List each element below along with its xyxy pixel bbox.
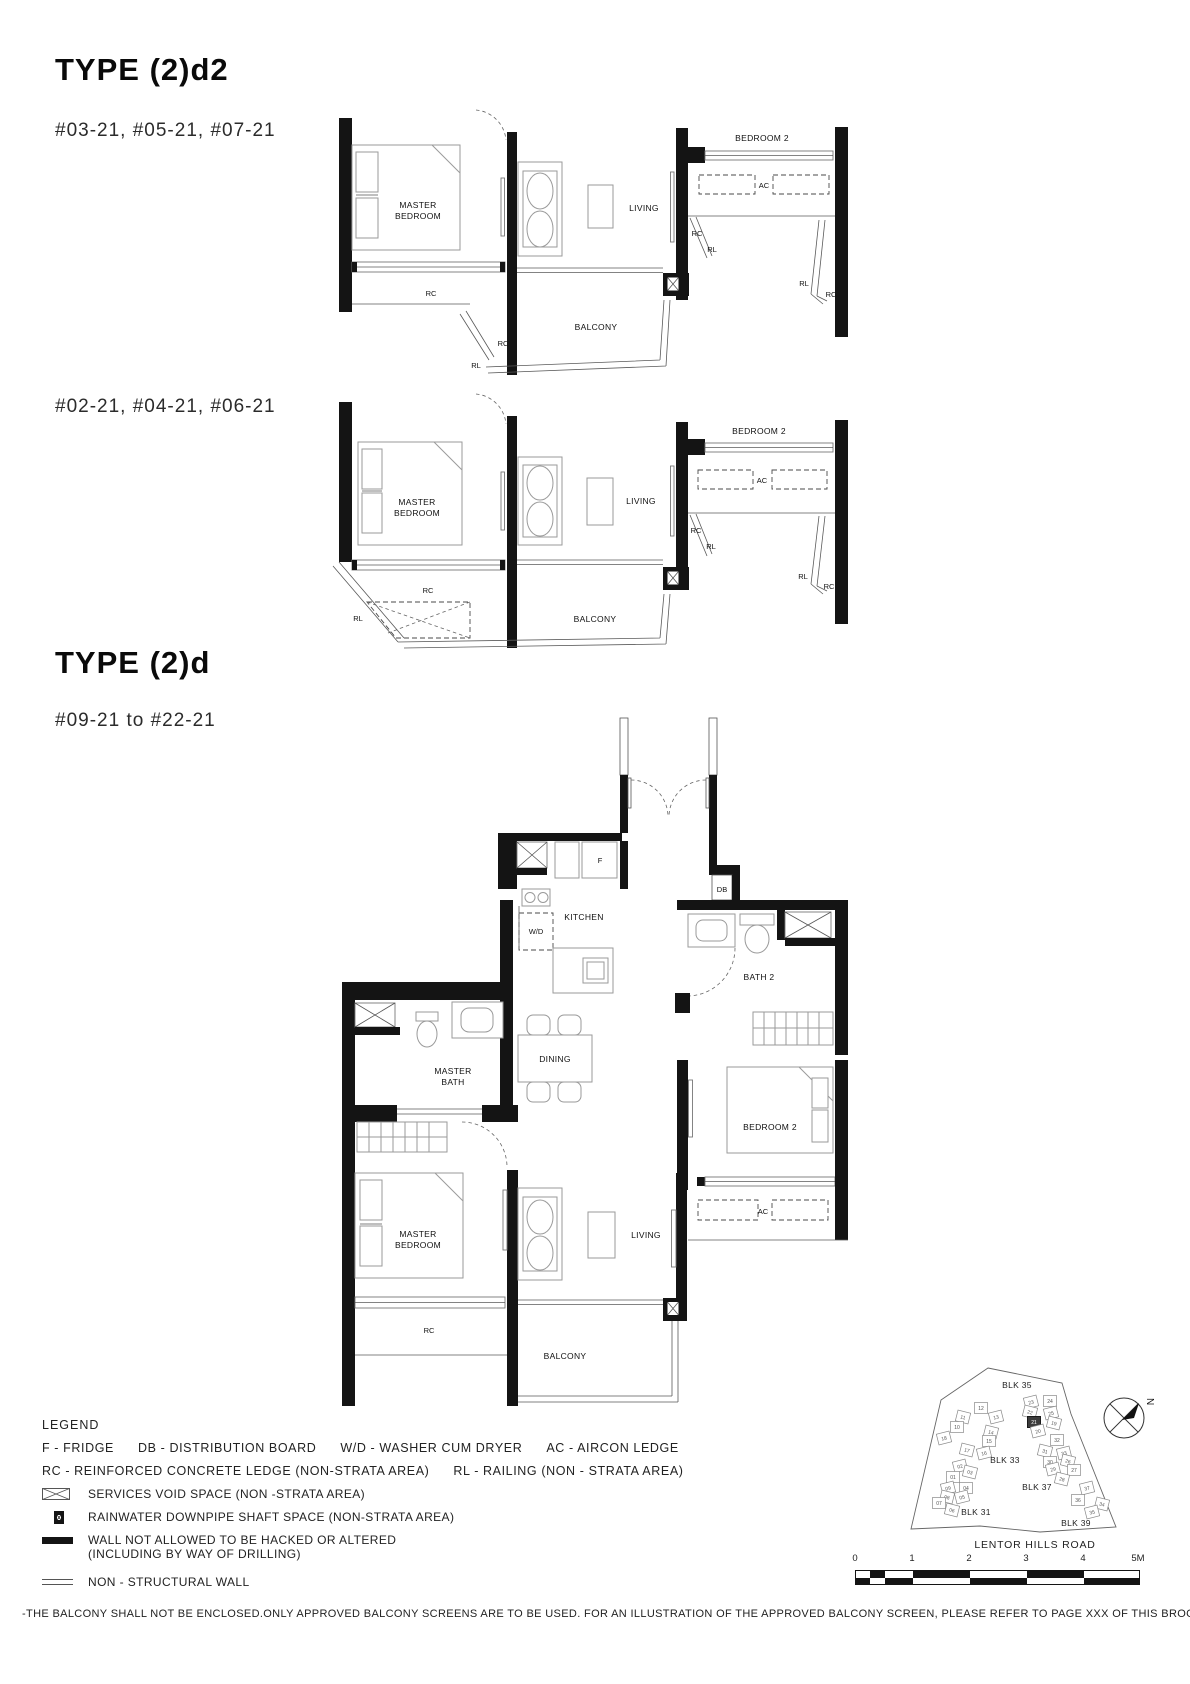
ac-label: AC <box>757 476 768 485</box>
entry-door-arc <box>476 110 506 140</box>
aircon-ledge <box>772 470 827 489</box>
site-unit-markers: 2324222521192012111310141815171632313330… <box>933 1395 1110 1519</box>
aircon-ledge <box>699 175 755 194</box>
master-bed <box>358 442 462 545</box>
window-strip <box>352 560 505 570</box>
rl-label: RL <box>799 279 809 288</box>
bedroom2-window <box>705 151 833 160</box>
rc-label: RC <box>826 290 837 299</box>
balcony-slider <box>517 560 663 565</box>
master-bath-sink <box>452 1002 503 1038</box>
north-label: N <box>1144 1398 1155 1405</box>
master-bedroom: MASTER BEDROOM <box>355 1122 518 1406</box>
site-unit-marker: 03 <box>962 1465 977 1479</box>
scale-tick: 0 <box>852 1553 857 1564</box>
legend-item-hack-wall: WALL NOT ALLOWED TO BE HACKED OR ALTERED… <box>42 1533 602 1561</box>
bath2-sink <box>688 914 735 947</box>
north-compass-icon: N <box>1104 1398 1155 1438</box>
site-unit-marker: 32 <box>1051 1435 1064 1446</box>
services-void-space <box>355 1003 400 1035</box>
site-unit-marker: 05 <box>954 1490 969 1504</box>
railing-diagonal <box>460 311 494 360</box>
sofa <box>518 1188 562 1280</box>
bedroom2: BEDROOM 2 AC <box>677 1012 848 1240</box>
rainwater-downpipe-shaft <box>663 273 689 296</box>
master-bedroom-door-arc <box>462 1122 507 1167</box>
rl-label: RL <box>471 361 481 370</box>
master-bedroom-label2: BEDROOM <box>394 508 440 518</box>
legend-abbr-rl: RL - RAILING (NON - STRATA AREA) <box>453 1464 683 1478</box>
services-void-space <box>777 910 835 946</box>
legend-item-label: SERVICES VOID SPACE (NON -STRATA AREA) <box>88 1487 365 1501</box>
balcony-railing <box>398 594 670 648</box>
bedroom2-window <box>705 443 833 452</box>
site-unit-marker: 10 <box>951 1422 964 1433</box>
svg-text:32: 32 <box>1054 1438 1060 1444</box>
svg-text:07: 07 <box>936 1501 942 1507</box>
scale-bar: 0 1 2 3 4 5M <box>855 1553 1140 1585</box>
balcony-label: BALCONY <box>544 1351 587 1361</box>
ac-label: AC <box>759 181 770 190</box>
living-label: LIVING <box>629 203 659 213</box>
type-2d2-units-a: #03-21, #05-21, #07-21 <box>55 120 276 142</box>
rl-label: RL <box>353 614 363 623</box>
scale-tick: 3 <box>1023 1553 1028 1564</box>
legend-abbreviations-row1: F - FRIDGE DB - DISTRIBUTION BOARD W/D -… <box>42 1441 602 1455</box>
svg-text:27: 27 <box>1071 1468 1077 1474</box>
floorplan-type-2d: F W/D KITCHEN DB <box>320 712 860 1412</box>
window <box>501 178 505 236</box>
bedroom2-bed <box>727 1067 833 1153</box>
rc-label: RC <box>824 582 835 591</box>
balcony-railing <box>518 1321 678 1402</box>
chair <box>527 1015 550 1035</box>
rc-label: RC <box>423 586 434 595</box>
chair <box>558 1015 581 1035</box>
tv-console <box>588 1212 615 1258</box>
kitchen-label: KITCHEN <box>564 912 603 922</box>
legend-item-non-structural: NON - STRUCTURAL WALL <box>42 1575 602 1589</box>
rc-label: RC <box>426 289 437 298</box>
legend-abbr-wd: W/D - WASHER CUM DRYER <box>340 1441 522 1455</box>
legend-abbreviations-row2: RC - REINFORCED CONCRETE LEDGE (NON-STRA… <box>42 1464 602 1478</box>
aircon-ledge <box>698 470 753 489</box>
rainwater-downpipe-shaft <box>663 567 689 590</box>
ac-label: AC <box>758 1207 769 1216</box>
blk-33-label: BLK 33 <box>990 1455 1020 1465</box>
site-unit-marker: 17 <box>959 1443 974 1457</box>
rainwater-downpipe-shaft <box>663 1298 687 1321</box>
site-unit-marker: 15 <box>983 1436 996 1447</box>
db-label: DB <box>717 885 727 894</box>
master-bedroom-label: MASTER <box>399 200 436 210</box>
rl-label: RL <box>706 542 716 551</box>
blk-37-label: BLK 37 <box>1022 1482 1052 1492</box>
sofa <box>518 457 562 545</box>
legend-item-rainwater: RAINWATER DOWNPIPE SHAFT SPACE (NON-STRA… <box>42 1510 602 1524</box>
living: LIVING <box>518 1173 687 1300</box>
chair <box>527 1082 550 1102</box>
window <box>671 466 675 536</box>
site-plan: 2324222521192012111310141815171632313330… <box>895 1360 1155 1545</box>
road-label: LENTOR HILLS ROAD <box>915 1539 1155 1551</box>
bedroom2-label: BEDROOM 2 <box>732 426 786 436</box>
window <box>501 472 505 530</box>
window-strip <box>352 262 505 272</box>
services-void-space <box>517 842 547 875</box>
non-structural-wall-icon <box>42 1575 74 1585</box>
bath2-door-arc <box>687 948 735 996</box>
bath2-toilet <box>740 914 774 953</box>
legend-item-services-void: SERVICES VOID SPACE (NON -STRATA AREA) <box>42 1487 602 1501</box>
rc-label: RC <box>498 339 509 348</box>
aircon-ledge <box>698 1200 758 1220</box>
master-bedroom-label2: BEDROOM <box>395 211 441 221</box>
bedroom2-window <box>697 1177 835 1186</box>
aircon-ledge <box>773 175 829 194</box>
fridge-label: F <box>598 856 603 865</box>
legend-item-label: WALL NOT ALLOWED TO BE HACKED OR ALTERED <box>88 1533 396 1547</box>
site-unit-marker: 18 <box>936 1431 951 1445</box>
rc-label: RC <box>692 229 703 238</box>
disclaimer-text: -THE BALCONY SHALL NOT BE ENCLOSED.ONLY … <box>22 1608 1190 1620</box>
rc-balcony: RC BALCONY <box>355 1297 687 1402</box>
scale-ticks: 0 1 2 3 4 5M <box>855 1553 1140 1567</box>
scale-bar-graphic <box>855 1570 1140 1585</box>
bedroom2-label: BEDROOM 2 <box>743 1122 797 1132</box>
site-unit-marker: 27 <box>1068 1465 1081 1476</box>
distribution-board: DB <box>709 865 740 905</box>
svg-text:01: 01 <box>950 1475 956 1481</box>
type-2d-title: TYPE (2)d <box>55 645 210 681</box>
site-unit-marker: 07 <box>933 1498 946 1509</box>
blk-31-label: BLK 31 <box>961 1507 991 1517</box>
tv-console <box>588 185 613 228</box>
legend-abbr-f: F - FRIDGE <box>42 1441 114 1455</box>
chair <box>558 1082 581 1102</box>
legend-item-label2: (INCLUDING BY WAY OF DRILLING) <box>88 1547 301 1561</box>
window <box>671 172 675 242</box>
master-bedroom-label: MASTER <box>399 1229 436 1239</box>
blk-39-label: BLK 39 <box>1061 1518 1091 1528</box>
master-bed <box>352 145 460 250</box>
wardrobe <box>357 1122 447 1152</box>
bath2-label: BATH 2 <box>744 972 775 982</box>
rainwater-downpipe-icon <box>42 1510 74 1524</box>
entry-door-arc <box>476 394 506 424</box>
hack-wall-icon <box>42 1533 74 1544</box>
living-label: LIVING <box>631 1230 661 1240</box>
site-unit-marker: 24 <box>1044 1396 1057 1407</box>
dining-label: DINING <box>539 1054 571 1064</box>
legend-item-label: RAINWATER DOWNPIPE SHAFT SPACE (NON-STRA… <box>88 1510 454 1524</box>
bedroom2-label: BEDROOM 2 <box>735 133 789 143</box>
legend-item-label: NON - STRUCTURAL WALL <box>88 1575 250 1589</box>
type-2d2-title: TYPE (2)d2 <box>55 52 229 88</box>
tv-console <box>587 478 613 525</box>
balcony-label: BALCONY <box>575 322 618 332</box>
legend-abbr-db: DB - DISTRIBUTION BOARD <box>138 1441 316 1455</box>
aircon-ledge <box>772 1200 828 1220</box>
rc-label: RC <box>424 1326 435 1335</box>
scale-tick: 2 <box>966 1553 971 1564</box>
scale-tick: 4 <box>1080 1553 1085 1564</box>
balcony-label: BALCONY <box>574 614 617 624</box>
floorplan-type-2d2-b: MASTER BEDROOM RC RL LIVING BEDROOM 2 <box>300 388 860 650</box>
scale-tick: 1 <box>909 1553 914 1564</box>
master-bath-label: MASTER <box>434 1066 471 1076</box>
legend: LEGEND F - FRIDGE DB - DISTRIBUTION BOAR… <box>42 1418 602 1589</box>
master-bed <box>355 1173 463 1278</box>
svg-text:24: 24 <box>1047 1399 1053 1405</box>
services-void-space <box>367 602 470 638</box>
svg-text:36: 36 <box>1075 1498 1081 1504</box>
brochure-page: TYPE (2)d2 #03-21, #05-21, #07-21 #02-21… <box>0 0 1190 1684</box>
balcony-slider <box>517 268 663 273</box>
svg-text:21: 21 <box>1031 1420 1037 1426</box>
legend-title: LEGEND <box>42 1418 602 1432</box>
rc-label: RC <box>691 526 702 535</box>
site-unit-marker: 12 <box>975 1403 988 1414</box>
site-unit-marker: 13 <box>988 1410 1003 1424</box>
svg-text:15: 15 <box>986 1439 992 1445</box>
legend-abbr-ac: AC - AIRCON LEDGE <box>546 1441 678 1455</box>
dining: DINING <box>518 1015 592 1102</box>
kitchen: F W/D KITCHEN <box>498 809 628 993</box>
entry <box>620 718 717 865</box>
washer-dryer-label: W/D <box>529 927 544 936</box>
type-2d2-units-b: #02-21, #04-21, #06-21 <box>55 396 276 418</box>
master-bath-toilet <box>416 1012 438 1047</box>
site-unit-marker: 35 <box>1084 1505 1099 1519</box>
hob <box>522 889 550 906</box>
living-label: LIVING <box>626 496 656 506</box>
sofa <box>518 162 562 256</box>
master-bedroom-label2: BEDROOM <box>395 1240 441 1250</box>
site-unit-marker: 37 <box>1079 1481 1094 1495</box>
services-void-icon <box>42 1487 74 1500</box>
rl-label: RL <box>798 572 808 581</box>
site-unit-marker: 36 <box>1072 1495 1085 1506</box>
svg-text:10: 10 <box>954 1425 960 1431</box>
rl-label: RL <box>707 245 717 254</box>
svg-text:12: 12 <box>978 1406 984 1412</box>
site-unit-marker: 06 <box>944 1503 959 1517</box>
master-bath-label2: BATH <box>441 1077 464 1087</box>
blk-35-label: BLK 35 <box>1002 1380 1032 1390</box>
master-bedroom-label: MASTER <box>398 497 435 507</box>
type-2d-units: #09-21 to #22-21 <box>55 710 216 732</box>
scale-tick: 5M <box>1131 1553 1144 1564</box>
floorplan-type-2d2-a: MASTER BEDROOM RC RC RL LIVING BEDROOM 2… <box>300 108 860 378</box>
wardrobe <box>753 1012 833 1045</box>
site-unit-marker: 31 <box>1037 1444 1052 1458</box>
site-unit-marker: 19 <box>1046 1416 1061 1430</box>
legend-abbr-rc: RC - REINFORCED CONCRETE LEDGE (NON-STRA… <box>42 1464 429 1478</box>
counter-sink <box>553 948 613 993</box>
